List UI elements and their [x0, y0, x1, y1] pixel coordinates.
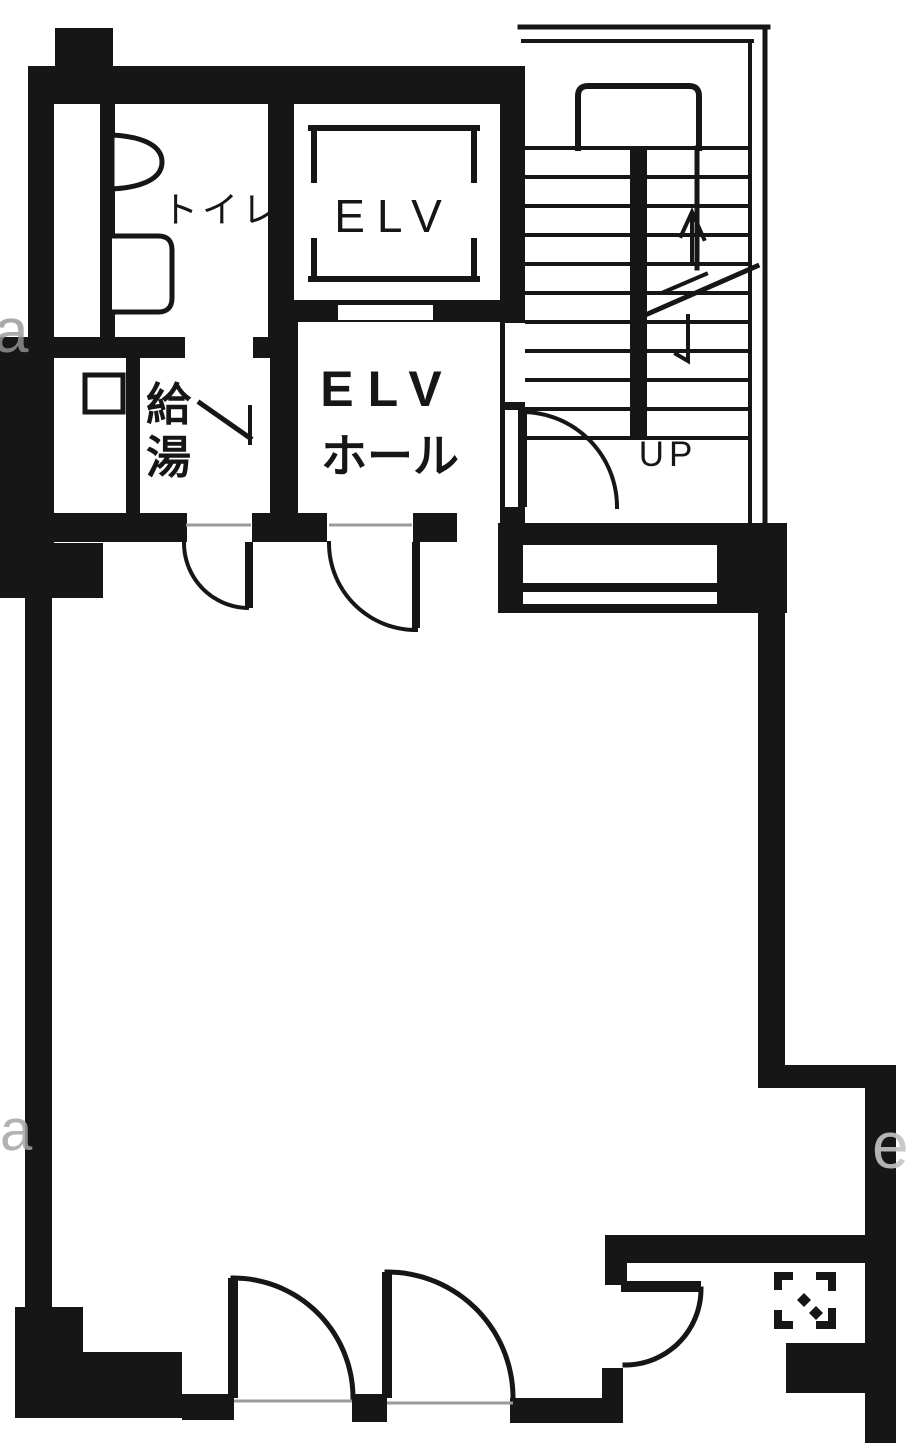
kyuto-sink-icon: [85, 375, 123, 412]
wall-bottom-left-step2: [80, 1352, 182, 1418]
floor-plan-drawing: トイレ ELV ELV ホール 給 湯 UP a a e: [0, 0, 907, 1443]
wall-bottom-left-step1: [15, 1307, 83, 1418]
wall-main-band-b: [252, 513, 327, 542]
wall-left-lower: [25, 598, 52, 1310]
toilet-bowl-icon: [112, 135, 162, 189]
alcove-door-leaf: [621, 1281, 701, 1292]
south-door2-swing-arc: [387, 1272, 513, 1398]
stair-landing-outline: [578, 86, 699, 148]
wall-right: [758, 613, 785, 1065]
wall-hall-left: [270, 322, 298, 542]
stair-center-wall: [630, 148, 647, 438]
wall-bottom-seg2: [352, 1394, 387, 1422]
wall-right-step-out: [758, 1065, 896, 1088]
label-hot-water-char2: 湯: [146, 432, 191, 483]
label-elevator-hall-line2: ホール: [321, 430, 459, 482]
wall-main-band-a: [53, 513, 187, 542]
label-elevator-hall-line1: ELV: [320, 361, 456, 417]
label-toilet: トイレ: [162, 189, 282, 230]
stair-door-leaf: [518, 410, 527, 507]
door-a-swing-arc: [184, 543, 249, 608]
wall-top-left-pier: [55, 28, 113, 70]
south-door2-leaf: [382, 1272, 392, 1398]
elv-door-slot: [338, 305, 433, 320]
wall-bottom-seg3: [510, 1398, 623, 1423]
watermark-left-upper: a: [0, 297, 29, 366]
toilet-tank-icon: [112, 236, 172, 312]
door-b-swing-arc: [329, 543, 416, 630]
watermark-right-lower: e: [872, 1108, 907, 1182]
wall-toilet-kyuto-band-left: [28, 337, 185, 358]
wall-left-thick: [0, 337, 54, 545]
window-mid-rail: [523, 583, 717, 592]
wall-alcove-top: [605, 1235, 883, 1263]
watermark-left-lower: a: [0, 1098, 33, 1163]
wall-main-band-c: [413, 513, 457, 542]
window-sill: [523, 604, 717, 613]
south-door1-leaf: [228, 1278, 238, 1398]
stair-door-swing-arc: [522, 412, 617, 507]
door-b-leaf: [412, 542, 420, 628]
label-hot-water-char1: 給: [146, 379, 192, 430]
alcove-door-swing-arc: [625, 1289, 701, 1365]
label-stairs-up: UP: [639, 435, 698, 474]
door-a-leaf: [245, 542, 253, 608]
kyuto-door-leaf-line: [200, 403, 250, 438]
floor-plan: トイレ ELV ELV ホール 給 湯 UP a a e: [0, 0, 907, 1443]
south-door1-swing-arc: [233, 1278, 353, 1398]
window-left-column: [498, 545, 523, 613]
wall-bottom-seg1: [182, 1394, 234, 1420]
wall-alcove-left-seg2: [602, 1368, 623, 1400]
wall-alcove-step-block: [786, 1343, 873, 1393]
label-elevator-shaft: ELV: [334, 190, 454, 242]
wall-left-bump: [0, 543, 103, 598]
alcove-tile-pattern-icon: [774, 1272, 836, 1329]
stair-wall-recess: [505, 323, 525, 402]
wall-top: [28, 66, 525, 104]
wall-kyuto-inner-divider: [126, 358, 140, 513]
window-right-column: [717, 523, 787, 613]
